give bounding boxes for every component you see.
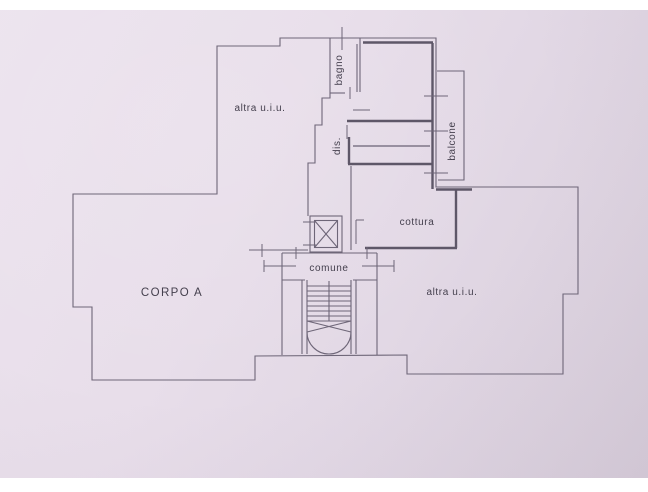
label-hallway: dis.	[332, 137, 343, 155]
floorplan-drawing: altra u.i.u. bagno dis. balcone cottura …	[0, 0, 648, 492]
scanned-floorplan-photo: altra u.i.u. bagno dis. balcone cottura …	[0, 0, 648, 492]
label-common-area: comune	[309, 263, 348, 274]
elevator-shaft	[303, 216, 342, 252]
label-kitchen: cottura	[400, 217, 435, 228]
label-upper-left-unit: altra u.i.u.	[234, 103, 285, 114]
label-bathroom: bagno	[334, 55, 345, 86]
label-balcony: balcone	[447, 121, 458, 160]
staircase	[302, 280, 356, 354]
room-labels: altra u.i.u. bagno dis. balcone cottura …	[141, 55, 478, 299]
label-building-body: CORPO A	[141, 287, 203, 299]
outer-walls	[73, 38, 578, 380]
label-lower-right-unit: altra u.i.u.	[426, 287, 477, 298]
